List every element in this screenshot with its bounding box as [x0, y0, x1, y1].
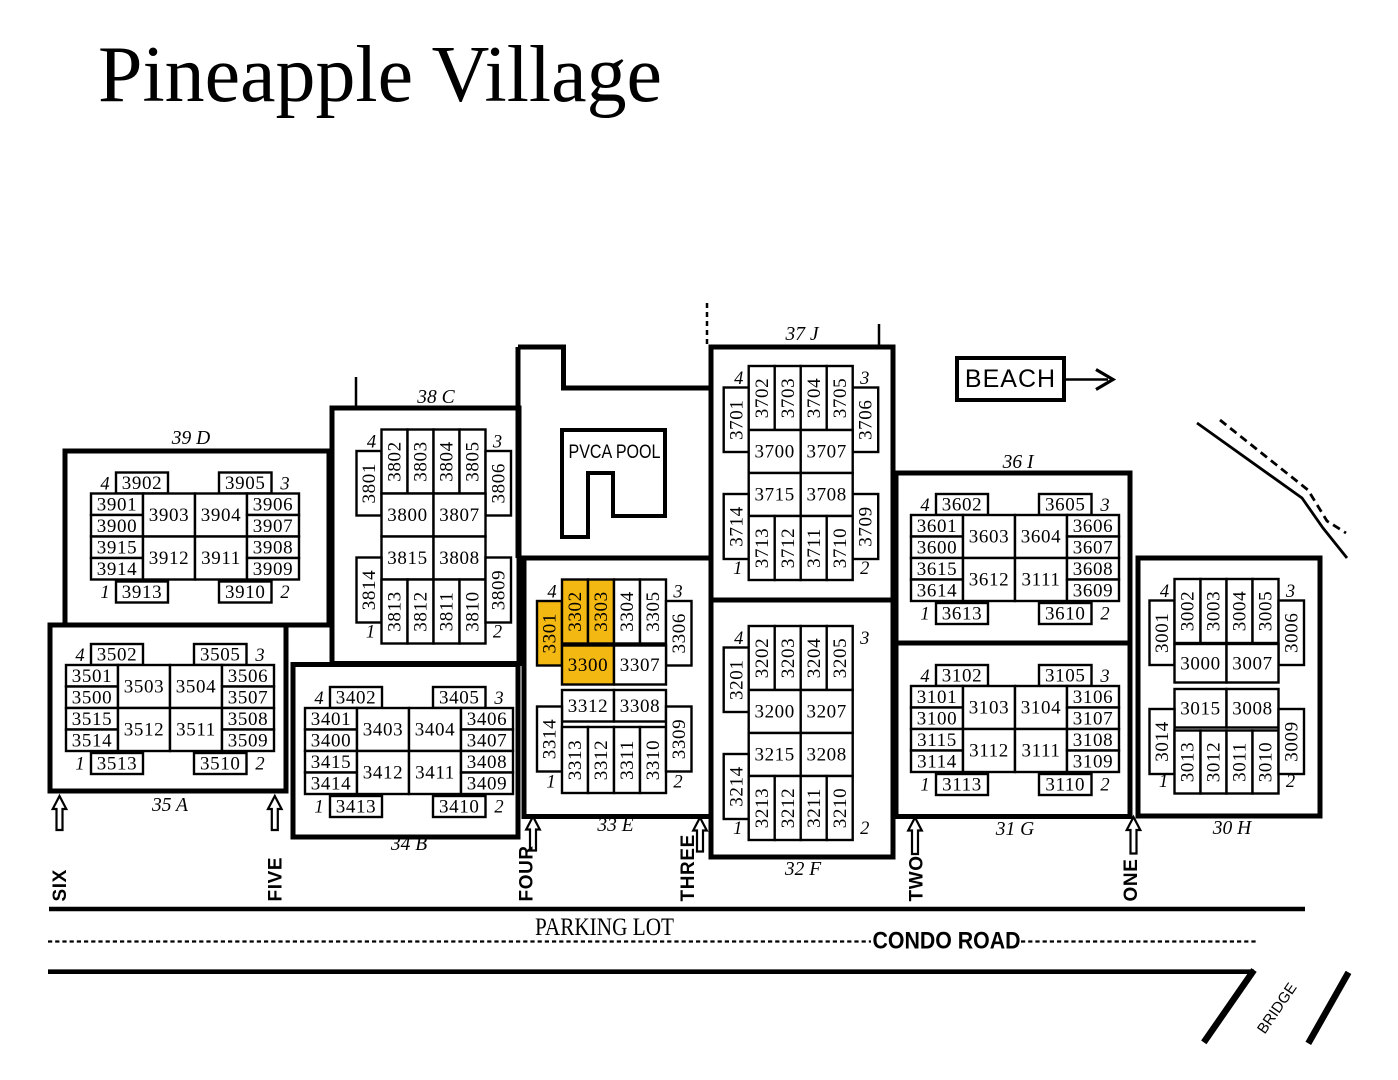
svg-text:3909: 3909: [253, 559, 293, 580]
svg-text:3011: 3011: [1230, 742, 1251, 782]
svg-text:3013: 3013: [1178, 742, 1199, 782]
svg-text:BEACH: BEACH: [965, 365, 1056, 393]
svg-text:3: 3: [493, 689, 503, 709]
svg-text:4: 4: [920, 667, 929, 687]
svg-text:3106: 3106: [1073, 687, 1113, 708]
svg-text:3807: 3807: [439, 505, 479, 526]
svg-text:3711: 3711: [804, 528, 825, 568]
svg-text:1: 1: [920, 776, 929, 796]
svg-text:3102: 3102: [942, 666, 982, 687]
svg-text:4: 4: [734, 629, 743, 649]
svg-text:3607: 3607: [1073, 537, 1113, 558]
svg-text:3502: 3502: [97, 645, 137, 666]
svg-text:4: 4: [547, 583, 556, 603]
svg-text:3304: 3304: [617, 591, 638, 631]
svg-text:3504: 3504: [176, 677, 216, 698]
svg-text:TWO: TWO: [907, 855, 928, 901]
svg-text:3609: 3609: [1073, 580, 1113, 601]
svg-text:3407: 3407: [467, 730, 507, 751]
svg-text:31 G: 31 G: [995, 819, 1034, 840]
svg-text:3413: 3413: [336, 797, 376, 818]
svg-text:3114: 3114: [917, 751, 957, 772]
svg-text:3: 3: [279, 475, 289, 495]
svg-text:36 I: 36 I: [1002, 452, 1035, 473]
svg-text:3212: 3212: [778, 788, 799, 828]
svg-text:3: 3: [492, 433, 502, 453]
svg-text:3202: 3202: [752, 638, 773, 678]
svg-text:3007: 3007: [1232, 653, 1272, 674]
svg-text:3207: 3207: [806, 702, 846, 723]
svg-text:3604: 3604: [1021, 527, 1061, 548]
svg-text:39 D: 39 D: [171, 428, 210, 449]
svg-text:3804: 3804: [437, 441, 458, 481]
svg-text:3006: 3006: [1281, 613, 1302, 653]
svg-text:3904: 3904: [201, 505, 241, 526]
svg-text:2: 2: [493, 623, 502, 643]
svg-text:3708: 3708: [806, 485, 846, 506]
svg-text:3: 3: [1099, 496, 1109, 516]
svg-text:32 F: 32 F: [784, 859, 822, 880]
svg-text:3312: 3312: [568, 696, 608, 717]
svg-text:4: 4: [100, 475, 109, 495]
svg-text:38 C: 38 C: [416, 387, 455, 408]
svg-text:3000: 3000: [1180, 653, 1220, 674]
svg-text:3: 3: [859, 369, 869, 389]
svg-text:3913: 3913: [122, 582, 162, 603]
svg-text:3613: 3613: [942, 604, 982, 625]
svg-text:3506: 3506: [228, 666, 268, 687]
svg-text:3205: 3205: [830, 638, 851, 678]
svg-text:3302: 3302: [565, 591, 586, 631]
svg-text:3109: 3109: [1073, 751, 1113, 772]
svg-text:3808: 3808: [439, 548, 479, 569]
svg-text:3100: 3100: [917, 708, 957, 729]
svg-text:FOUR: FOUR: [517, 845, 538, 901]
svg-text:3606: 3606: [1073, 516, 1113, 537]
svg-text:3404: 3404: [415, 720, 455, 741]
svg-text:3705: 3705: [830, 378, 851, 418]
svg-text:3309: 3309: [669, 719, 690, 759]
svg-text:3303: 3303: [591, 591, 612, 631]
svg-text:3406: 3406: [467, 709, 507, 730]
svg-text:3313: 3313: [565, 740, 586, 780]
svg-text:3903: 3903: [149, 505, 189, 526]
svg-text:3806: 3806: [488, 463, 509, 503]
svg-text:3306: 3306: [669, 613, 690, 653]
svg-text:3009: 3009: [1281, 721, 1302, 761]
svg-text:3104: 3104: [1021, 698, 1061, 719]
svg-text:3405: 3405: [439, 688, 479, 709]
svg-text:3900: 3900: [97, 516, 137, 537]
svg-text:2: 2: [280, 583, 289, 603]
svg-text:3210: 3210: [830, 788, 851, 828]
svg-text:3710: 3710: [830, 528, 851, 568]
svg-text:3813: 3813: [385, 591, 406, 631]
svg-text:2: 2: [860, 559, 869, 579]
svg-text:3003: 3003: [1204, 591, 1225, 631]
svg-text:3412: 3412: [363, 763, 403, 784]
svg-text:3111: 3111: [1022, 741, 1061, 762]
svg-text:30 H: 30 H: [1212, 818, 1252, 839]
svg-text:3115: 3115: [917, 730, 957, 751]
svg-text:PVCA POOL: PVCA POOL: [569, 442, 661, 463]
svg-text:2: 2: [673, 773, 682, 793]
svg-text:3105: 3105: [1045, 666, 1085, 687]
svg-text:4: 4: [734, 369, 743, 389]
svg-text:3203: 3203: [778, 638, 799, 678]
svg-text:3704: 3704: [804, 378, 825, 418]
svg-text:4: 4: [314, 689, 323, 709]
svg-text:3107: 3107: [1073, 708, 1113, 729]
svg-text:3414: 3414: [311, 773, 351, 794]
svg-text:3012: 3012: [1204, 742, 1225, 782]
svg-text:2: 2: [494, 798, 503, 818]
svg-text:2: 2: [1286, 772, 1295, 792]
svg-text:3005: 3005: [1256, 591, 1277, 631]
svg-text:3608: 3608: [1073, 559, 1113, 580]
svg-text:3402: 3402: [336, 688, 376, 709]
svg-text:3300: 3300: [568, 655, 608, 676]
svg-text:3400: 3400: [311, 730, 351, 751]
svg-text:3810: 3810: [463, 591, 484, 631]
svg-text:3908: 3908: [253, 537, 293, 558]
svg-text:3112: 3112: [969, 741, 1009, 762]
svg-text:3501: 3501: [72, 666, 112, 687]
svg-text:3911: 3911: [201, 548, 241, 569]
svg-text:3505: 3505: [200, 645, 240, 666]
svg-text:3509: 3509: [228, 730, 268, 751]
svg-text:3204: 3204: [804, 638, 825, 678]
svg-text:3907: 3907: [253, 516, 293, 537]
svg-text:3514: 3514: [72, 730, 112, 751]
svg-text:1: 1: [1159, 772, 1168, 792]
svg-text:3802: 3802: [385, 441, 406, 481]
svg-text:1: 1: [366, 623, 375, 643]
svg-text:3512: 3512: [124, 720, 164, 741]
svg-text:3314: 3314: [540, 719, 561, 759]
svg-text:3801: 3801: [359, 463, 380, 503]
svg-text:1: 1: [100, 583, 109, 603]
svg-text:3715: 3715: [754, 485, 794, 506]
svg-text:3101: 3101: [917, 687, 957, 708]
svg-text:37 J: 37 J: [784, 324, 819, 345]
svg-text:3409: 3409: [467, 773, 507, 794]
svg-text:PARKING LOT: PARKING LOT: [535, 914, 674, 941]
svg-text:3612: 3612: [969, 570, 1009, 591]
svg-text:4: 4: [367, 433, 376, 453]
svg-text:3600: 3600: [917, 537, 957, 558]
svg-text:3001: 3001: [1152, 613, 1173, 653]
svg-text:3914: 3914: [97, 559, 137, 580]
svg-text:3200: 3200: [754, 702, 794, 723]
svg-text:3805: 3805: [463, 441, 484, 481]
svg-text:1: 1: [920, 605, 929, 625]
svg-text:1: 1: [314, 798, 323, 818]
svg-text:3411: 3411: [415, 763, 455, 784]
svg-text:3301: 3301: [540, 613, 561, 653]
svg-text:3500: 3500: [72, 687, 112, 708]
svg-text:3002: 3002: [1178, 591, 1199, 631]
svg-text:3415: 3415: [311, 752, 351, 773]
svg-text:3515: 3515: [72, 709, 112, 730]
svg-text:1: 1: [733, 559, 742, 579]
svg-text:3015: 3015: [1180, 698, 1220, 719]
svg-text:3010: 3010: [1256, 742, 1277, 782]
svg-text:3408: 3408: [467, 752, 507, 773]
svg-text:3603: 3603: [969, 527, 1009, 548]
svg-text:3702: 3702: [752, 378, 773, 418]
svg-text:3912: 3912: [149, 548, 189, 569]
svg-text:3311: 3311: [617, 740, 638, 780]
svg-text:3008: 3008: [1232, 698, 1272, 719]
svg-text:3111: 3111: [1022, 570, 1061, 591]
svg-text:3812: 3812: [411, 591, 432, 631]
svg-text:3902: 3902: [122, 473, 162, 494]
svg-text:3602: 3602: [942, 495, 982, 516]
svg-text:2: 2: [255, 755, 264, 775]
svg-text:3510: 3510: [200, 754, 240, 775]
svg-text:3: 3: [1099, 667, 1109, 687]
svg-text:3707: 3707: [806, 442, 846, 463]
svg-text:3307: 3307: [620, 655, 660, 676]
svg-text:2: 2: [1100, 605, 1109, 625]
svg-text:3014: 3014: [1152, 721, 1173, 761]
svg-text:3507: 3507: [228, 687, 268, 708]
svg-text:3910: 3910: [225, 582, 265, 603]
svg-text:THREE: THREE: [678, 834, 699, 901]
svg-text:3815: 3815: [387, 548, 427, 569]
svg-text:3803: 3803: [411, 441, 432, 481]
svg-text:4: 4: [920, 496, 929, 516]
svg-text:3214: 3214: [726, 766, 747, 806]
svg-text:3701: 3701: [726, 400, 747, 440]
svg-text:2: 2: [860, 819, 869, 839]
svg-text:3: 3: [254, 646, 264, 666]
svg-text:3503: 3503: [124, 677, 164, 698]
svg-text:3403: 3403: [363, 720, 403, 741]
svg-text:3610: 3610: [1045, 604, 1085, 625]
svg-text:3208: 3208: [806, 745, 846, 766]
svg-text:3800: 3800: [387, 505, 427, 526]
svg-text:3201: 3201: [726, 660, 747, 700]
svg-text:3814: 3814: [359, 570, 380, 610]
svg-text:3614: 3614: [917, 580, 957, 601]
svg-text:3004: 3004: [1230, 591, 1251, 631]
svg-text:3615: 3615: [917, 559, 957, 580]
svg-text:1: 1: [75, 755, 84, 775]
svg-text:FIVE: FIVE: [265, 857, 286, 902]
svg-text:3714: 3714: [726, 506, 747, 546]
svg-text:3308: 3308: [620, 696, 660, 717]
svg-text:Pineapple Village: Pineapple Village: [98, 31, 662, 119]
svg-text:3108: 3108: [1073, 730, 1113, 751]
svg-text:3312: 3312: [591, 740, 612, 780]
svg-text:3901: 3901: [97, 494, 137, 515]
svg-text:3401: 3401: [311, 709, 351, 730]
svg-text:ONE: ONE: [1121, 859, 1142, 902]
svg-text:3811: 3811: [437, 592, 458, 632]
svg-text:3508: 3508: [228, 709, 268, 730]
svg-text:2: 2: [1100, 776, 1109, 796]
svg-text:3906: 3906: [253, 494, 293, 515]
svg-text:3: 3: [859, 629, 869, 649]
svg-text:3809: 3809: [488, 570, 509, 610]
svg-text:3915: 3915: [97, 537, 137, 558]
svg-text:3703: 3703: [778, 378, 799, 418]
svg-text:4: 4: [1160, 582, 1169, 602]
svg-text:3511: 3511: [176, 720, 216, 741]
svg-text:3905: 3905: [225, 473, 265, 494]
svg-text:3601: 3601: [917, 516, 957, 537]
svg-text:3706: 3706: [856, 400, 877, 440]
svg-text:3305: 3305: [643, 591, 664, 631]
svg-text:35 A: 35 A: [151, 795, 188, 816]
svg-text:3: 3: [1285, 582, 1295, 602]
svg-text:4: 4: [75, 646, 84, 666]
svg-text:3310: 3310: [643, 740, 664, 780]
svg-text:3605: 3605: [1045, 495, 1085, 516]
svg-text:1: 1: [733, 819, 742, 839]
svg-text:1: 1: [546, 773, 555, 793]
svg-text:3113: 3113: [942, 775, 982, 796]
svg-text:3712: 3712: [778, 528, 799, 568]
svg-text:CONDO ROAD: CONDO ROAD: [873, 928, 1021, 955]
svg-text:3215: 3215: [754, 745, 794, 766]
svg-text:SIX: SIX: [50, 869, 71, 901]
svg-text:3410: 3410: [439, 797, 479, 818]
svg-text:3709: 3709: [856, 506, 877, 546]
svg-text:3513: 3513: [97, 754, 137, 775]
svg-text:3110: 3110: [1045, 775, 1085, 796]
svg-text:3213: 3213: [752, 788, 773, 828]
svg-text:3103: 3103: [969, 698, 1009, 719]
svg-text:3713: 3713: [752, 528, 773, 568]
svg-text:3211: 3211: [804, 788, 825, 828]
svg-text:3: 3: [672, 583, 682, 603]
svg-text:3700: 3700: [754, 442, 794, 463]
